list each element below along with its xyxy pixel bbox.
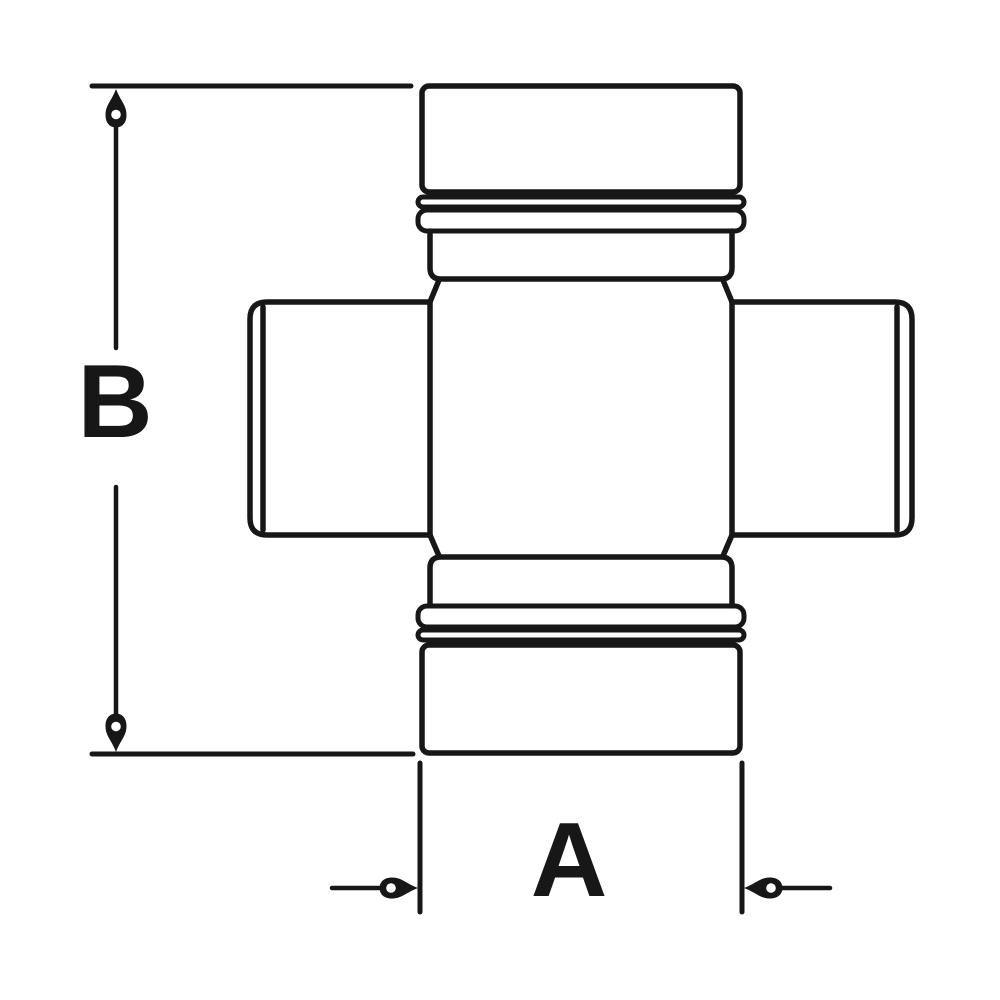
dimension-a-label: A [531,801,608,919]
top-thick-ring [418,210,744,231]
bottom-thin-ring [418,630,744,640]
bottom-bearing-cap [422,645,740,753]
bottom-thick-ring [418,606,744,627]
ujoint-technical-drawing: B A [0,0,1000,1000]
drawing-canvas: B A [0,0,1000,1000]
top-bearing-cap [422,86,740,192]
dimension-b-label: B [77,344,152,460]
top-thin-ring [418,197,744,207]
